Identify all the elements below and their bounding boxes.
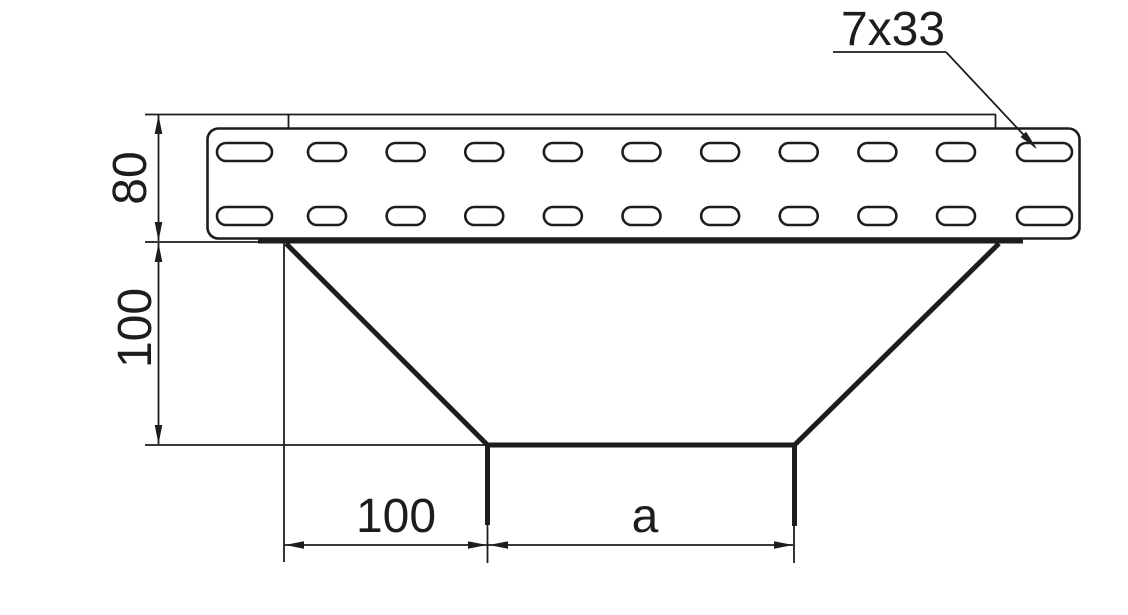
reducer-body	[286, 244, 999, 527]
arrow-up-icon	[155, 115, 163, 134]
arrow-up-icon	[155, 243, 163, 262]
slot-hole	[623, 143, 661, 161]
slot-hole	[544, 207, 582, 225]
slot-hole	[780, 143, 818, 161]
slot-hole	[217, 143, 272, 161]
dimension-drop-height: 100	[109, 243, 487, 445]
slot-hole	[308, 143, 346, 161]
callout-leader-line	[946, 52, 1035, 147]
arrow-right-icon	[468, 541, 487, 549]
dimension-rail-height: 80	[104, 115, 262, 242]
left-slant-edge	[286, 244, 488, 446]
slot-hole	[780, 207, 818, 225]
slot-hole	[1017, 207, 1072, 225]
slot-hole	[623, 207, 661, 225]
arrow-left-icon	[489, 541, 508, 549]
slot-hole	[387, 143, 425, 161]
perforation-slots	[217, 143, 1072, 225]
arrow-right-icon	[774, 541, 793, 549]
slot-hole	[387, 207, 425, 225]
rail-height-label: 80	[104, 151, 157, 204]
tray-side-rail	[208, 129, 1080, 239]
arrow-down-icon	[155, 425, 163, 444]
slot-hole	[937, 143, 975, 161]
slot-size-label: 7x33	[841, 3, 945, 56]
drawing-canvas: 80 100 100 a 7x33	[0, 0, 1128, 615]
slot-hole	[544, 143, 582, 161]
cable-tray-reducer-drawing: 80 100 100 a 7x33	[0, 0, 1128, 615]
slot-hole	[937, 207, 975, 225]
rear-flange	[145, 115, 996, 129]
slot-hole	[217, 207, 272, 225]
arrow-down-icon	[155, 222, 163, 241]
arrow-left-icon	[285, 541, 304, 549]
slot-hole	[701, 143, 739, 161]
slot-hole	[465, 143, 503, 161]
bottom-width-label: a	[632, 490, 659, 543]
slot-size-callout: 7x33	[833, 3, 1037, 149]
slot-hole	[858, 207, 896, 225]
drop-height-label: 100	[109, 288, 162, 368]
slot-hole	[465, 207, 503, 225]
slot-hole	[1017, 143, 1072, 161]
dimension-bottom: 100 a	[284, 243, 794, 563]
slot-hole	[701, 207, 739, 225]
slot-hole	[858, 143, 896, 161]
right-slant-edge	[795, 244, 1000, 446]
bottom-offset-label: 100	[356, 490, 436, 543]
slot-hole	[308, 207, 346, 225]
